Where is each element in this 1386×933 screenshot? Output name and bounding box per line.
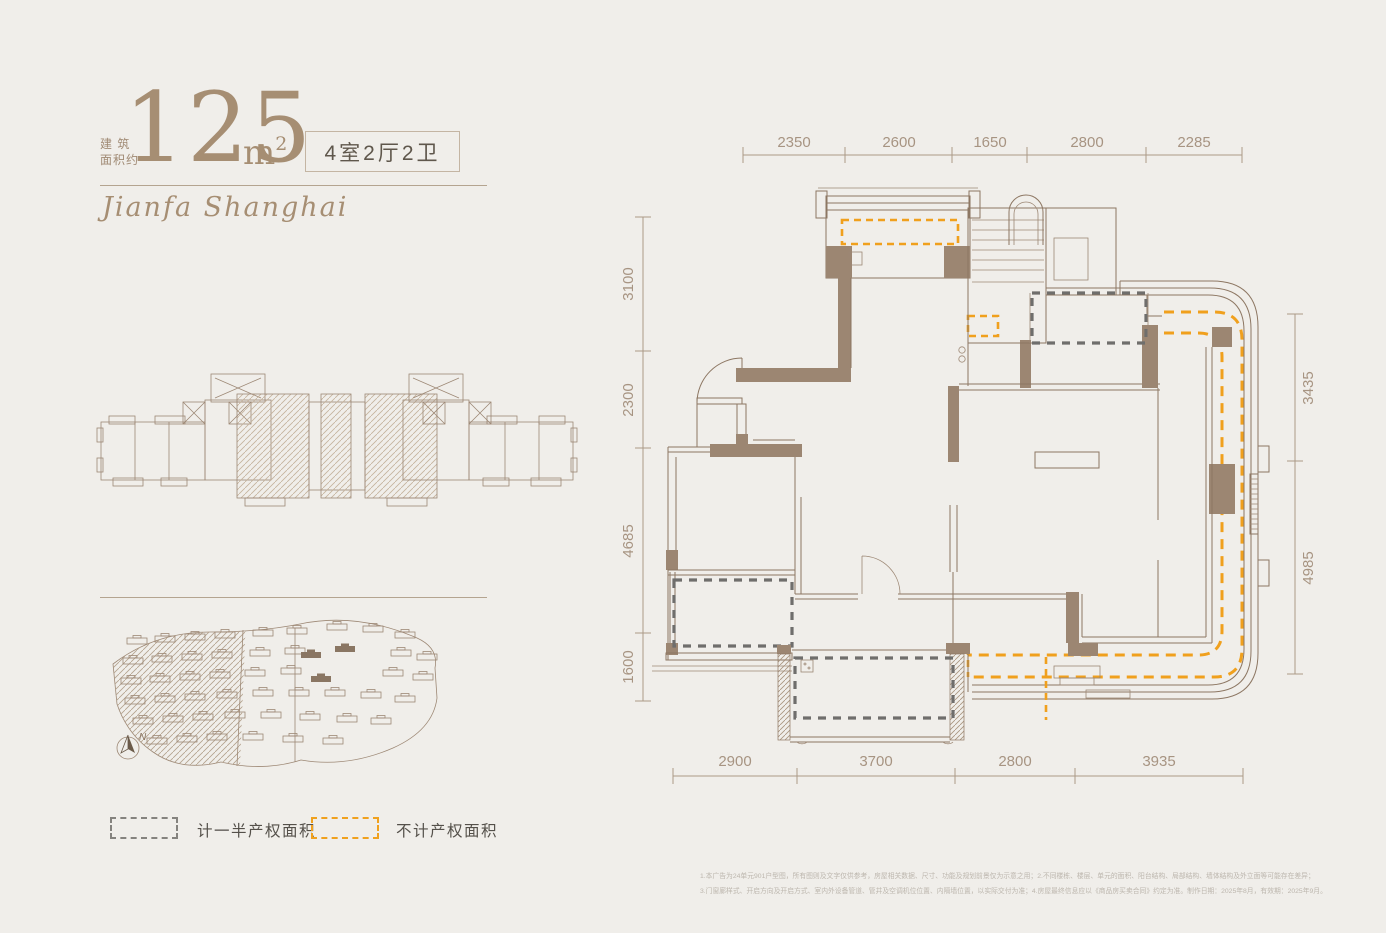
dim-label: 2600	[882, 134, 915, 151]
dim-label: 2900	[718, 753, 751, 770]
dim-label: 4685	[620, 524, 637, 557]
building-outline	[97, 374, 577, 506]
wall-column	[1209, 464, 1235, 514]
dim-label: 2300	[620, 383, 637, 416]
unit-layout-tag: 4室2厅2卫	[305, 131, 460, 172]
dim-label: 4985	[1300, 551, 1317, 584]
brand-script: Jianfa Shanghai	[102, 192, 348, 223]
dim-label: 2350	[777, 134, 810, 151]
site-highlighted-buildings	[301, 644, 355, 683]
dimension-lines	[635, 147, 1303, 784]
dim-label: 3700	[859, 753, 892, 770]
legend-swatch-no-property	[311, 817, 379, 839]
entry-area	[697, 258, 851, 447]
dim-label: 3435	[1300, 371, 1317, 404]
site-roads	[237, 628, 295, 766]
central-walls	[948, 325, 1160, 643]
area-unit: m2	[243, 133, 287, 173]
disclaimer-line-1: 1.本广告为24单元901户型图，所有图则及文字仅供参考，房屋相关数据、尺寸、功…	[700, 869, 1340, 884]
floorplan: 2350 2600 1650 2800 2285 3100 2300 4685 …	[618, 120, 1358, 810]
disclaimer: 1.本广告为24单元901户型图，所有图则及文字仅供参考，房屋相关数据、尺寸、功…	[700, 869, 1340, 899]
section-divider	[100, 597, 487, 598]
building-key-plan	[95, 362, 580, 510]
dim-label: 3935	[1142, 753, 1175, 770]
dim-label: 2800	[1070, 134, 1103, 151]
legend-label-no-property: 不计产权面积	[396, 819, 498, 841]
legend-swatch-half-property	[110, 817, 178, 839]
legend-label-half-property: 计一半产权面积	[197, 819, 316, 841]
core-stairwell	[968, 195, 1120, 343]
header-divider	[100, 185, 487, 186]
site-hatched-zone	[95, 602, 247, 780]
half-property-room	[1030, 293, 1148, 343]
right-section-walls	[968, 347, 1212, 692]
dim-label: 1650	[973, 134, 1006, 151]
wall-column	[1212, 327, 1232, 347]
north-label: N	[139, 732, 147, 743]
site-plan: N	[95, 602, 455, 780]
dim-label: 2285	[1177, 134, 1210, 151]
north-compass-icon: N	[117, 732, 147, 759]
dim-label: 1600	[620, 650, 637, 683]
left-rooms	[652, 440, 802, 671]
dim-label: 3100	[620, 267, 637, 300]
disclaimer-line-2: 3.门窗廊样式、开启方向及开启方式、室内外设备管道、管井及空调机位位置、内隔墙位…	[700, 884, 1340, 899]
dim-label: 2800	[998, 753, 1031, 770]
bottom-balcony	[777, 643, 970, 744]
